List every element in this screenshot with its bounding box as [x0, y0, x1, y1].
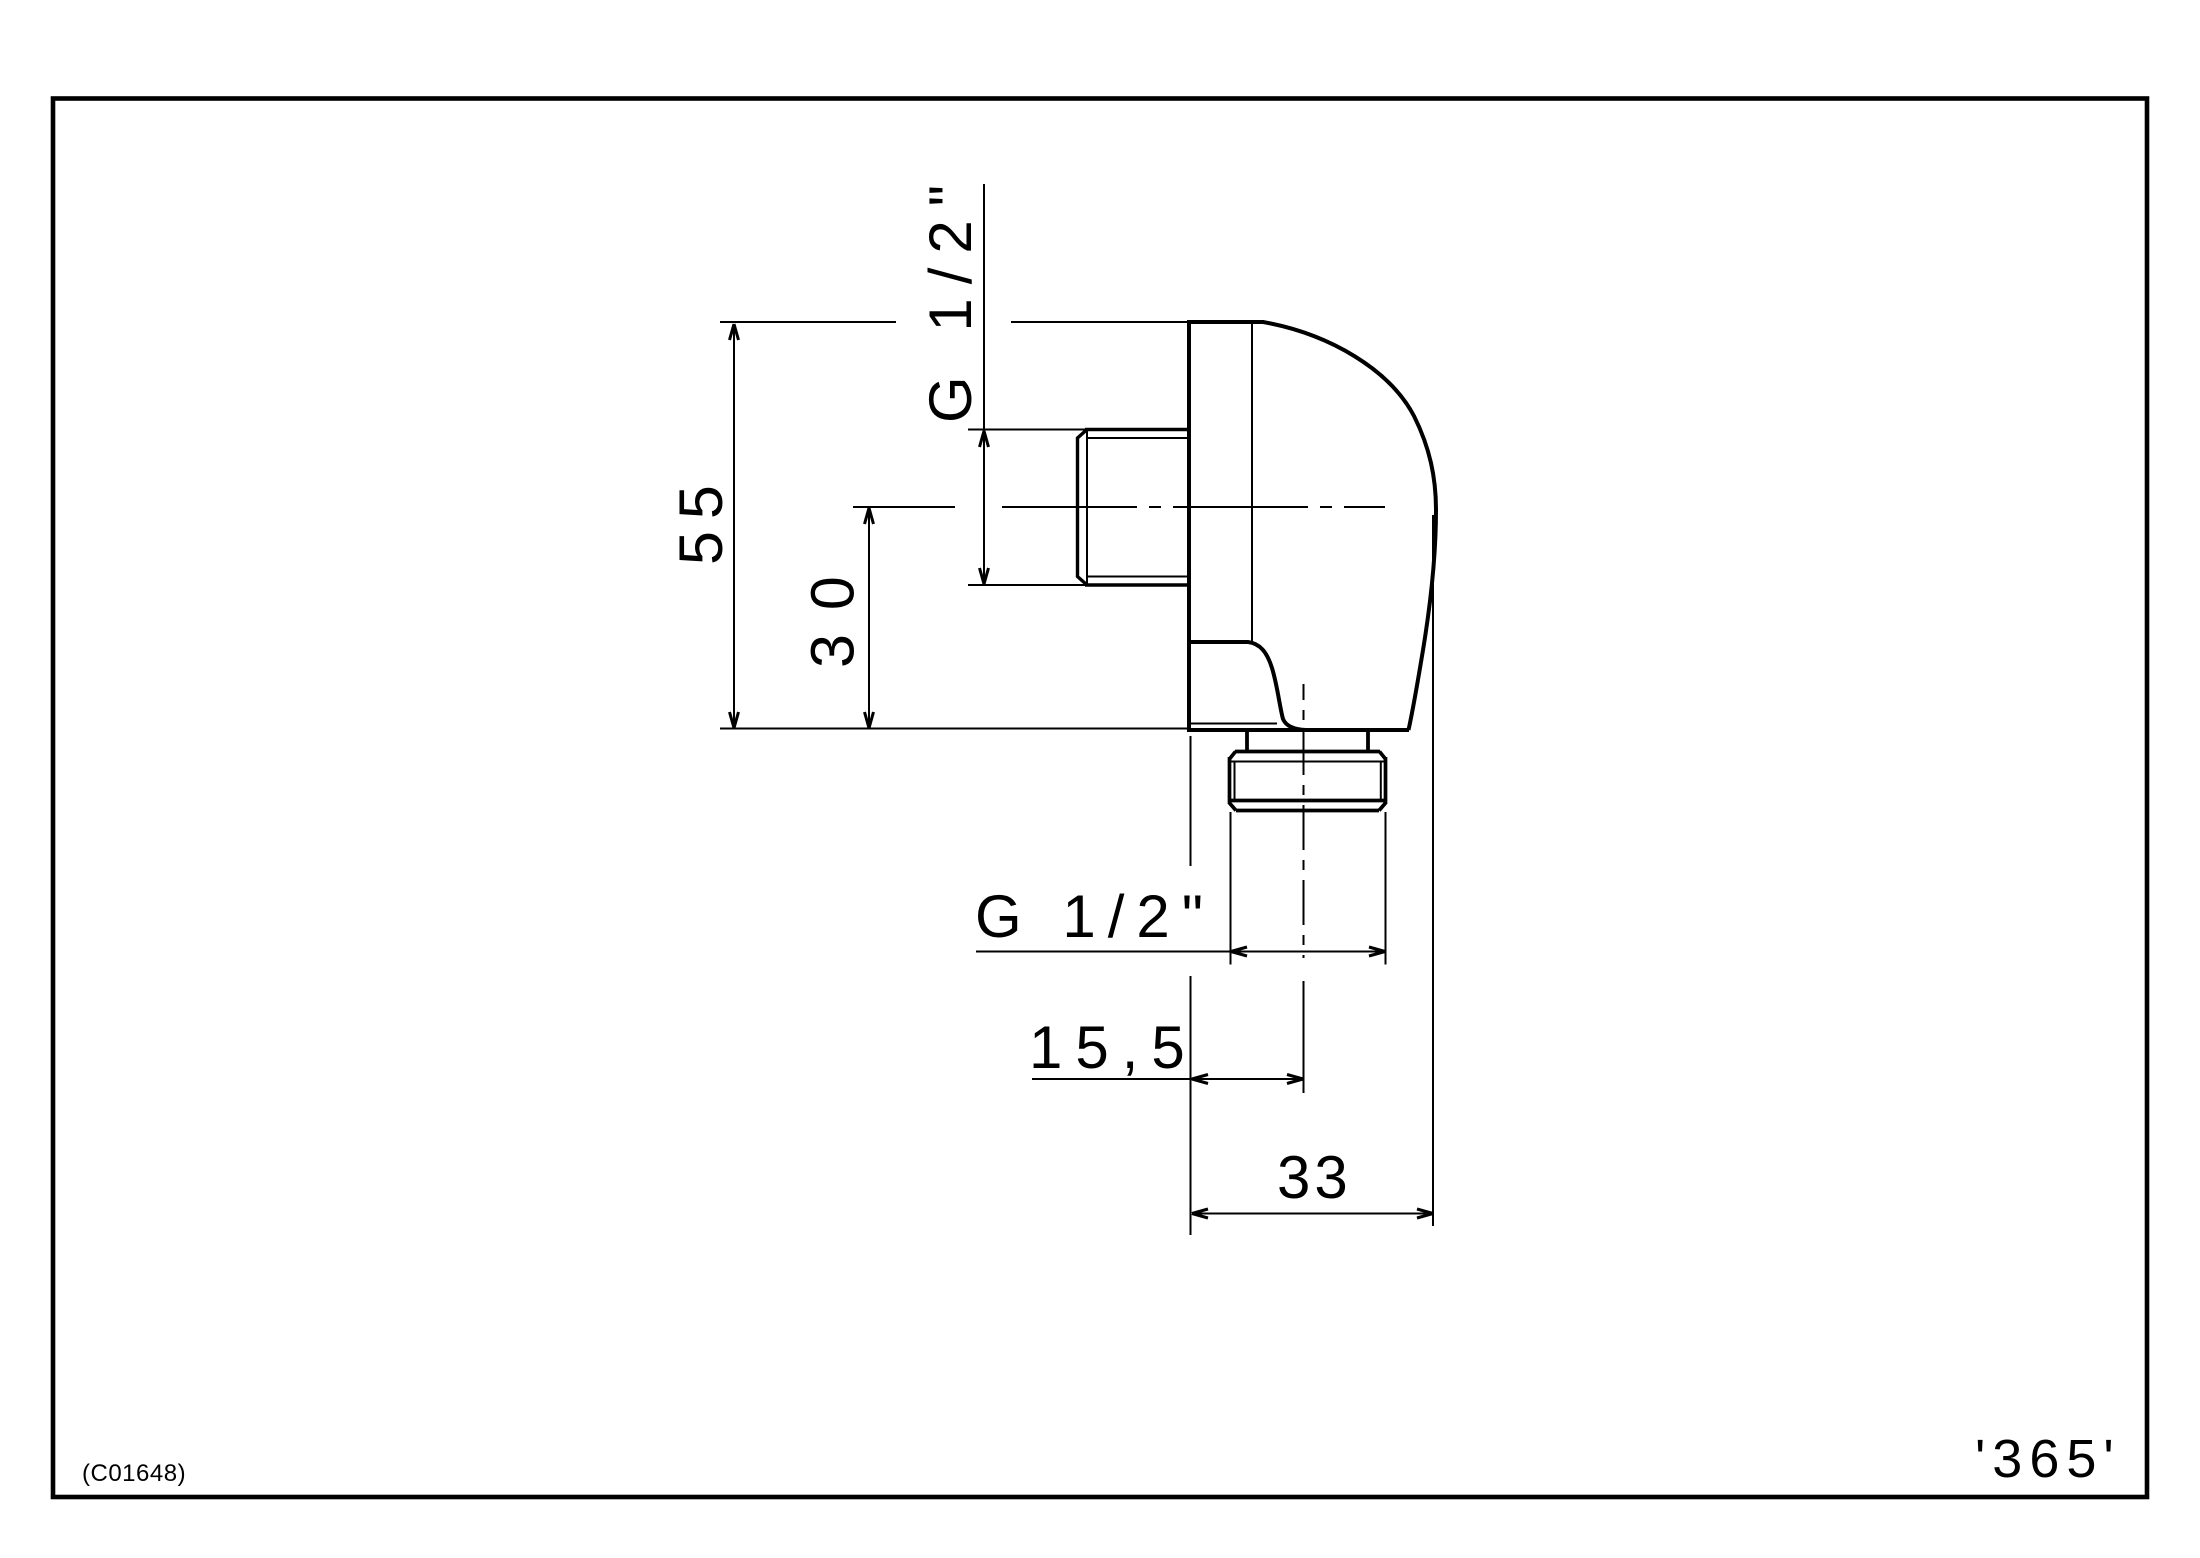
svg-text:G 1/2": G 1/2" [917, 171, 984, 423]
svg-text:30: 30 [799, 552, 867, 668]
svg-text:(C01648): (C01648) [82, 1460, 186, 1487]
svg-text:G 1/2": G 1/2" [975, 883, 1215, 950]
svg-text:'365': '365' [1975, 1429, 2121, 1489]
svg-text:33: 33 [1277, 1144, 1352, 1211]
svg-text:15,5: 15,5 [1029, 1014, 1198, 1081]
svg-text:55: 55 [667, 473, 735, 565]
